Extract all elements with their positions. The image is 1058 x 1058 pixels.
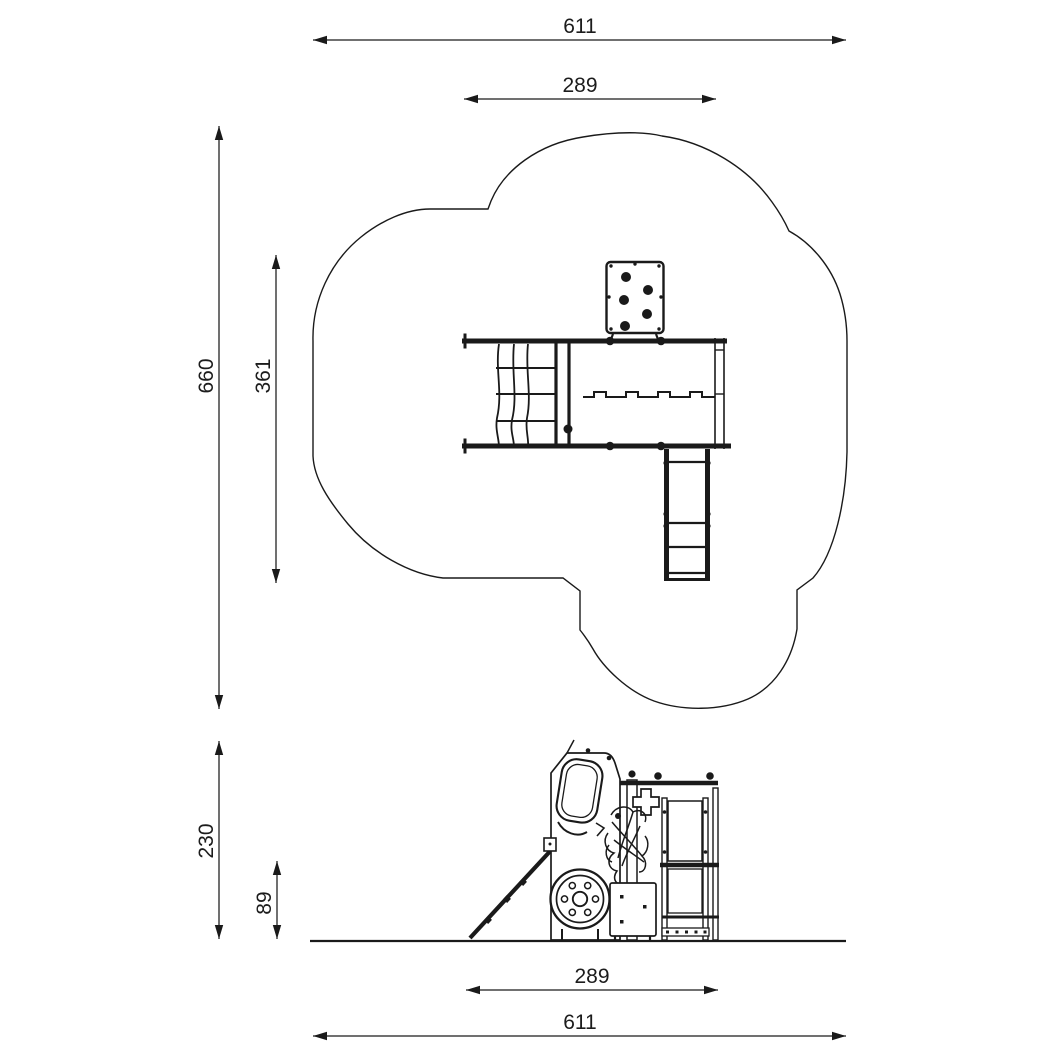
- stair-unit: [660, 788, 719, 940]
- dim-plan-inner-depth: 361: [252, 255, 276, 583]
- dim-label-plan-overall-width: 611: [563, 15, 596, 38]
- climbing-wall-panel-plan: [607, 262, 664, 342]
- climbing-ramp: [470, 847, 554, 938]
- panel-flag-stick: [567, 740, 574, 753]
- dim-label-side-platform-height: 89: [253, 891, 276, 914]
- deck-bolts: [564, 337, 666, 451]
- safety-zone-outline: [313, 133, 847, 709]
- access-ladder-plan: [663, 449, 710, 581]
- side-view: [310, 740, 846, 941]
- technical-drawing-page: 611 289 660 361 230 89 289 611: [0, 0, 1058, 1058]
- dim-label-plan-structure-width: 289: [562, 74, 597, 97]
- dim-side-overall-height: 230: [195, 741, 219, 939]
- ladder-bolts: [663, 460, 710, 528]
- dim-label-side-overall-width: 611: [563, 1011, 596, 1034]
- plan-view: [313, 133, 847, 709]
- dim-plan-overall-depth: 660: [195, 126, 219, 709]
- base-panel: [610, 883, 656, 941]
- playground-dimension-drawing: 611 289 660 361 230 89 289 611: [0, 0, 1058, 1058]
- net-climber-plan: [465, 334, 556, 454]
- dim-side-overall-width: 611: [313, 1011, 846, 1036]
- dim-plan-overall-width: 611: [313, 15, 846, 40]
- dim-label-plan-inner-depth: 361: [252, 358, 275, 393]
- dim-label-plan-overall-depth: 660: [195, 358, 218, 393]
- dim-label-side-structure-width: 289: [574, 965, 609, 988]
- dim-label-side-overall-height: 230: [195, 823, 218, 858]
- dim-plan-structure-width: 289: [464, 74, 716, 99]
- dim-side-platform-height: 89: [253, 861, 277, 939]
- dim-side-structure-width: 289: [466, 965, 718, 990]
